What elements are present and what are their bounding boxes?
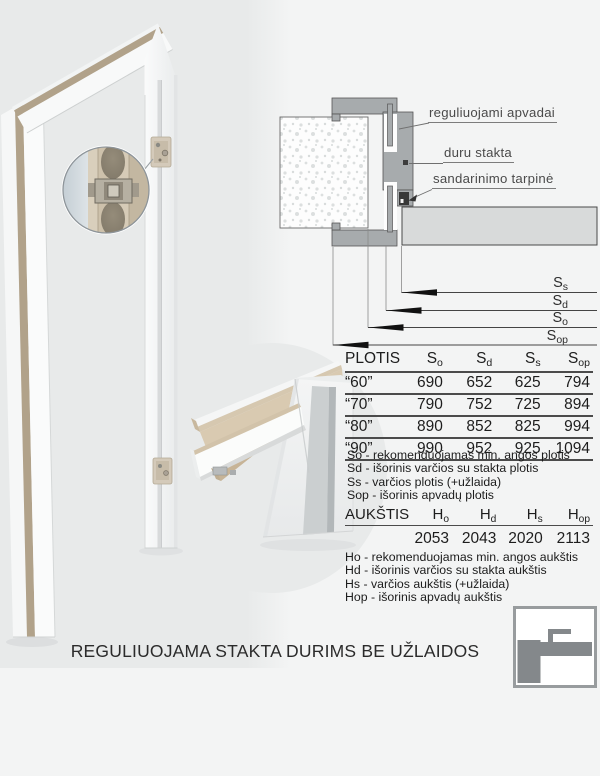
- plotis-table: PLOTIS So Sd Ss Sop “60” 690 652 625 794…: [345, 347, 593, 461]
- dim-sub: op: [556, 334, 568, 346]
- hinge-icon: [151, 137, 171, 167]
- leader-dot: [403, 160, 408, 165]
- cell-so: 790: [405, 394, 446, 416]
- col-header-sd: Sd: [446, 347, 495, 372]
- col-header-ss: Ss: [495, 347, 543, 372]
- label-duru-stakta: duru stakta: [443, 145, 514, 163]
- cell-sop: 794: [544, 372, 593, 394]
- legend-line: Hd - išorinis varčios su stakta aukštis: [345, 564, 578, 577]
- aukstis-legend: Ho - rekomenduojamas min. angos aukštis …: [345, 551, 578, 605]
- table-row: “80” 890 852 825 994: [345, 416, 593, 438]
- dim-label-sd: Sd: [508, 293, 568, 309]
- col-header-hop: Hop: [546, 504, 593, 526]
- col-sub: op: [578, 357, 590, 369]
- wall-section: [280, 117, 368, 228]
- cell-hd: 2043: [452, 526, 499, 550]
- dim-sub: o: [562, 316, 568, 328]
- legend-line: So - rekomenduojamas min. angos plotis: [347, 449, 570, 462]
- table-row: “70” 790 752 725 894: [345, 394, 593, 416]
- legend-line: Sop - išorinis apvadų plotis: [347, 489, 570, 502]
- cell-so: 690: [405, 372, 446, 394]
- col-base: H: [527, 506, 538, 523]
- col-sub: o: [437, 357, 443, 369]
- cell-ss: 825: [495, 416, 543, 438]
- col-base: H: [480, 506, 491, 523]
- plotis-header-row: PLOTIS So Sd Ss Sop: [345, 347, 593, 372]
- dim-sub: s: [563, 281, 568, 293]
- cell-sop: 894: [544, 394, 593, 416]
- col-base: S: [568, 350, 578, 367]
- col-header-ho: Ho: [412, 504, 452, 526]
- aukstis-table: AUKŠTIS Ho Hd Hs Hop 2053 2043 2020 2113: [345, 504, 593, 549]
- aukstis-values-row: 2053 2043 2020 2113: [345, 526, 593, 550]
- dim-label-sop: Sop: [508, 328, 568, 344]
- table-row: “60” 690 652 625 794: [345, 372, 593, 394]
- label-sandarinimo-tarpine: sandarinimo tarpinė: [432, 171, 556, 189]
- legend-line: Hs - varčios aukštis (+užlaida): [345, 578, 578, 591]
- size-label: “80”: [345, 416, 405, 438]
- col-base: H: [568, 506, 579, 523]
- col-header-so: So: [405, 347, 446, 372]
- legend-line: Sd - išorinis varčios su stakta plotis: [347, 462, 570, 475]
- col-sub: s: [538, 514, 543, 525]
- catalog-page: reguliuojami apvadai duru stakta sandari…: [0, 0, 600, 776]
- cell-ss: 725: [495, 394, 543, 416]
- size-label: “70”: [345, 394, 405, 416]
- cell-sd: 852: [446, 416, 495, 438]
- cell-so: 890: [405, 416, 446, 438]
- col-base: S: [476, 350, 486, 367]
- cell-hs: 2020: [499, 526, 545, 550]
- size-label: “60”: [345, 372, 405, 394]
- dim-label-so: So: [508, 310, 568, 326]
- col-header-hd: Hd: [452, 504, 499, 526]
- cell-sop: 994: [544, 416, 593, 438]
- plotis-title: PLOTIS: [345, 347, 405, 372]
- col-sub: d: [486, 357, 492, 369]
- dim-base: S: [553, 275, 563, 291]
- dim-base: S: [547, 328, 557, 344]
- aukstis-title: AUKŠTIS: [345, 504, 412, 526]
- cell-hop: 2113: [546, 526, 593, 550]
- plotis-legend: So - rekomenduojamas min. angos plotis S…: [347, 449, 570, 503]
- cell-ss: 625: [495, 372, 543, 394]
- col-sub: d: [491, 514, 497, 525]
- door-leaf-section: [402, 207, 597, 245]
- dim-label-ss: Ss: [508, 275, 568, 291]
- hinge-icon: [153, 458, 172, 484]
- col-header-sop: Sop: [544, 347, 593, 372]
- frame-shadow: [6, 637, 58, 647]
- legend-line: Hop - išorinis apvadų aukštis: [345, 591, 578, 604]
- col-sub: s: [535, 357, 540, 369]
- col-base: S: [525, 350, 535, 367]
- tongue: [388, 104, 393, 146]
- col-base: S: [427, 350, 437, 367]
- tongue: [388, 186, 393, 232]
- dim-base: S: [552, 310, 562, 326]
- col-sub: o: [443, 514, 449, 525]
- dimension-arrows: [333, 289, 437, 348]
- dim-base: S: [552, 293, 562, 309]
- legend-line: Ss - varčios plotis (+užlaida): [347, 476, 570, 489]
- legend-line: Ho - rekomenduojamas min. angos aukštis: [345, 551, 578, 564]
- cell-sd: 652: [446, 372, 495, 394]
- cell-sd: 752: [446, 394, 495, 416]
- aukstis-header-row: AUKŠTIS Ho Hd Hs Hop: [345, 504, 593, 526]
- col-sub: op: [579, 514, 590, 525]
- seal-section: [399, 192, 409, 205]
- cell-ho: 2053: [412, 526, 452, 550]
- col-base: H: [433, 506, 444, 523]
- brand-logo: [515, 608, 596, 687]
- col-header-hs: Hs: [499, 504, 545, 526]
- label-reguliuojami-apvadai: reguliuojami apvadai: [428, 105, 557, 123]
- page-title: REGULIUOJAMA STAKTA DURIMS BE UŽLAIDOS: [55, 641, 495, 662]
- empty-cell: [345, 526, 412, 550]
